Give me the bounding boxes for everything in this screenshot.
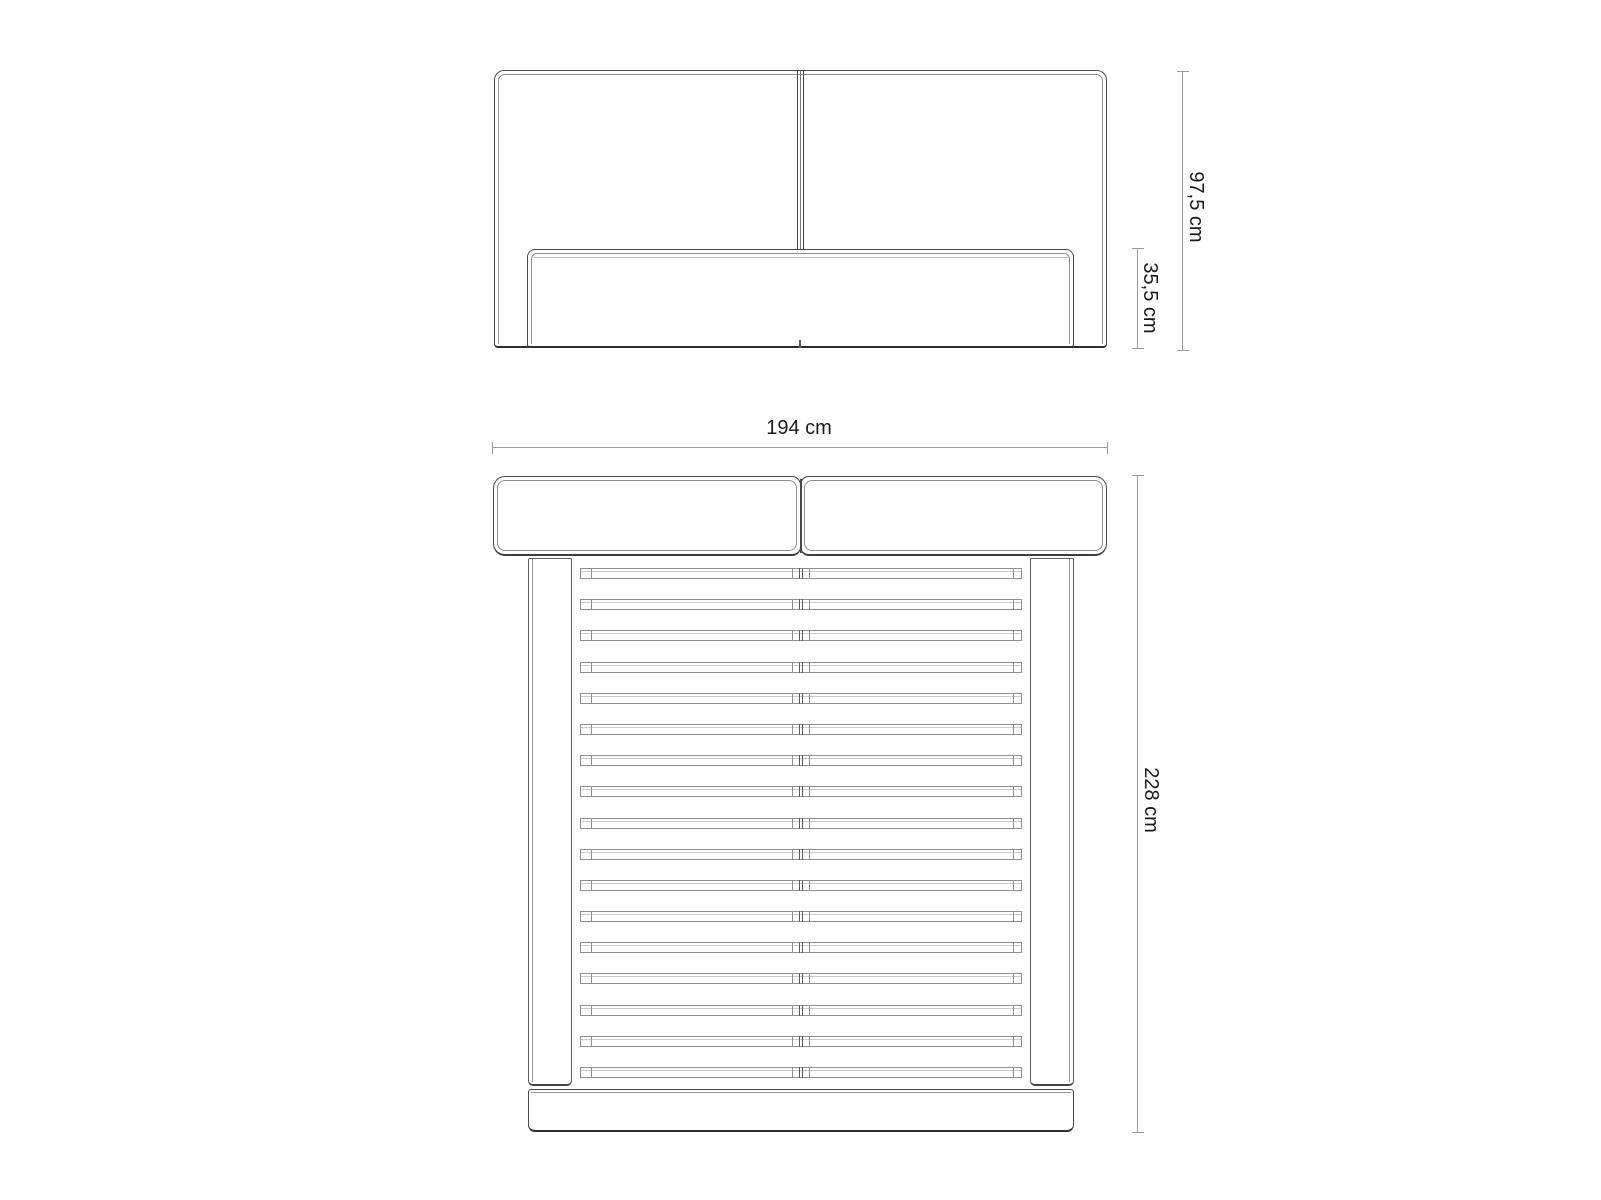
slat-center-support bbox=[802, 849, 803, 860]
dimension-diagram: 97,5 cm 35,5 cm 194 cm 228 cm bbox=[0, 0, 1601, 1200]
slat bbox=[580, 849, 1022, 860]
slat-center-support bbox=[792, 1067, 793, 1078]
dimension-label-base-height: 35,5 cm bbox=[1140, 262, 1160, 333]
slat-holder-left bbox=[591, 1036, 592, 1047]
slat-center-support bbox=[809, 849, 810, 860]
slat-center-support bbox=[809, 662, 810, 673]
slat-holder-left bbox=[591, 942, 592, 953]
slat-center-support bbox=[802, 724, 803, 735]
slat-center-support bbox=[809, 973, 810, 984]
front-view-center-tick bbox=[799, 340, 801, 348]
slat-center-support bbox=[809, 755, 810, 766]
slat-holder-left bbox=[591, 849, 592, 860]
dimension-label-width: 194 cm bbox=[766, 418, 832, 438]
slat-center-support bbox=[799, 786, 800, 797]
slat-center-support bbox=[799, 1036, 800, 1047]
dimension-line-width bbox=[493, 447, 1107, 448]
slat-holder-left bbox=[591, 755, 592, 766]
slat-center-support bbox=[802, 599, 803, 610]
slat-center-support bbox=[809, 1067, 810, 1078]
slat-holder-right bbox=[1013, 630, 1014, 641]
slat-center-support bbox=[802, 1005, 803, 1016]
slat-holder-right bbox=[1013, 942, 1014, 953]
slat-center-support bbox=[799, 568, 800, 579]
slat-center-support bbox=[799, 1067, 800, 1078]
slat bbox=[580, 911, 1022, 922]
slat-center-support bbox=[799, 818, 800, 829]
slat-center-support bbox=[792, 942, 793, 953]
slat-holder-right bbox=[1013, 849, 1014, 860]
slat-center-support bbox=[799, 662, 800, 673]
slat bbox=[580, 599, 1022, 610]
slat-holder-left bbox=[591, 693, 592, 704]
dimension-line-length bbox=[1137, 476, 1138, 1132]
slat-holder-left bbox=[591, 911, 592, 922]
slat-holder-right bbox=[1013, 911, 1014, 922]
slat bbox=[580, 880, 1022, 891]
dimension-label-total-height: 97,5 cm bbox=[1186, 171, 1206, 242]
slat-center-support bbox=[809, 911, 810, 922]
slat-center-support bbox=[792, 849, 793, 860]
slat-center-support bbox=[809, 599, 810, 610]
slat-holder-left bbox=[591, 662, 592, 673]
slat-center-support bbox=[809, 786, 810, 797]
slat-center-support bbox=[809, 942, 810, 953]
slat-holder-right bbox=[1013, 786, 1014, 797]
slat-center-support bbox=[802, 973, 803, 984]
slat-holder-left bbox=[591, 786, 592, 797]
slat-holder-right bbox=[1013, 880, 1014, 891]
slat-center-support bbox=[802, 568, 803, 579]
slat bbox=[580, 630, 1022, 641]
slat-center-support bbox=[802, 880, 803, 891]
slat-holder-right bbox=[1013, 724, 1014, 735]
slat-center-support bbox=[799, 911, 800, 922]
slat-center-support bbox=[809, 693, 810, 704]
slat-holder-left bbox=[591, 973, 592, 984]
slat bbox=[580, 662, 1022, 673]
slat bbox=[580, 818, 1022, 829]
slat-holder-right bbox=[1013, 1005, 1014, 1016]
slat-center-support bbox=[809, 568, 810, 579]
slat-holder-right bbox=[1013, 973, 1014, 984]
slat-center-support bbox=[792, 568, 793, 579]
slat-center-support bbox=[802, 693, 803, 704]
slat bbox=[580, 568, 1022, 579]
slat-center-support bbox=[809, 818, 810, 829]
slat-center-support bbox=[809, 1005, 810, 1016]
slat-center-support bbox=[799, 599, 800, 610]
slat-center-support bbox=[799, 973, 800, 984]
dimension-line-base-height bbox=[1137, 249, 1138, 348]
slat-center-support bbox=[802, 630, 803, 641]
slat-center-support bbox=[792, 662, 793, 673]
slat-center-support bbox=[792, 630, 793, 641]
slat-holder-left bbox=[591, 818, 592, 829]
slat-center-support bbox=[802, 1036, 803, 1047]
slat-center-support bbox=[799, 755, 800, 766]
plan-view-side-rail-left bbox=[528, 558, 572, 1086]
slat-holder-right bbox=[1013, 1067, 1014, 1078]
slat-holder-right bbox=[1013, 568, 1014, 579]
slat bbox=[580, 1067, 1022, 1078]
slat-center-support bbox=[792, 911, 793, 922]
slat-center-support bbox=[792, 880, 793, 891]
slat-center-support bbox=[799, 693, 800, 704]
slat-center-support bbox=[792, 973, 793, 984]
slat bbox=[580, 1036, 1022, 1047]
slat bbox=[580, 693, 1022, 704]
slat-center-support bbox=[802, 818, 803, 829]
dimension-label-length: 228 cm bbox=[1141, 767, 1161, 833]
slat-holder-right bbox=[1013, 1036, 1014, 1047]
slat-center-support bbox=[802, 662, 803, 673]
slat-holder-right bbox=[1013, 599, 1014, 610]
slat-holder-left bbox=[591, 1067, 592, 1078]
slat-holder-right bbox=[1013, 818, 1014, 829]
slat-center-support bbox=[802, 942, 803, 953]
slat bbox=[580, 724, 1022, 735]
slat-center-support bbox=[792, 693, 793, 704]
slat-holder-left bbox=[591, 880, 592, 891]
slat bbox=[580, 973, 1022, 984]
plan-view-headboard-cushion-right bbox=[800, 476, 1107, 556]
slat-holder-right bbox=[1013, 693, 1014, 704]
front-view-base-panel bbox=[527, 249, 1074, 348]
slat bbox=[580, 755, 1022, 766]
slat-holder-left bbox=[591, 599, 592, 610]
slat-holder-left bbox=[591, 724, 592, 735]
slat-holder-right bbox=[1013, 662, 1014, 673]
slat-center-support bbox=[799, 942, 800, 953]
slat-holder-right bbox=[1013, 755, 1014, 766]
slat-center-support bbox=[802, 755, 803, 766]
slat-center-support bbox=[792, 724, 793, 735]
dimension-line-total-height bbox=[1182, 72, 1183, 350]
slat-center-support bbox=[792, 1036, 793, 1047]
slat-center-support bbox=[802, 1067, 803, 1078]
slat-center-support bbox=[802, 786, 803, 797]
slat-center-support bbox=[809, 1036, 810, 1047]
slat-center-support bbox=[799, 1005, 800, 1016]
plan-view-headboard-cushion-left bbox=[493, 476, 801, 556]
slat bbox=[580, 786, 1022, 797]
slat-grid bbox=[580, 568, 1022, 1078]
slat-center-support bbox=[809, 630, 810, 641]
plan-view-side-rail-right bbox=[1030, 558, 1074, 1086]
plan-view-headboard-split-line bbox=[800, 479, 802, 553]
front-view-headboard-split-line bbox=[797, 71, 804, 249]
slat-center-support bbox=[809, 880, 810, 891]
slat-center-support bbox=[792, 818, 793, 829]
slat-center-support bbox=[799, 880, 800, 891]
slat-center-support bbox=[792, 786, 793, 797]
slat-center-support bbox=[792, 599, 793, 610]
slat-center-support bbox=[792, 1005, 793, 1016]
slat-holder-left bbox=[591, 568, 592, 579]
slat-holder-left bbox=[591, 630, 592, 641]
slat bbox=[580, 1005, 1022, 1016]
slat-center-support bbox=[799, 724, 800, 735]
slat bbox=[580, 942, 1022, 953]
slat-center-support bbox=[792, 755, 793, 766]
slat-holder-left bbox=[591, 1005, 592, 1016]
slat-center-support bbox=[809, 724, 810, 735]
plan-view-footboard bbox=[528, 1089, 1074, 1132]
slat-center-support bbox=[799, 630, 800, 641]
slat-center-support bbox=[799, 849, 800, 860]
slat-center-support bbox=[802, 911, 803, 922]
